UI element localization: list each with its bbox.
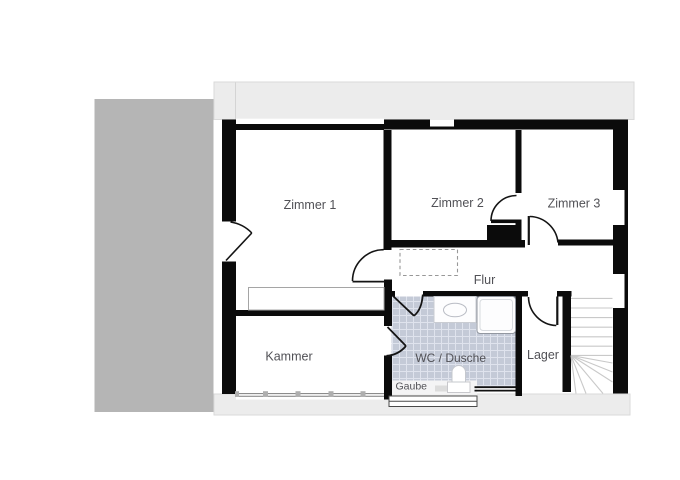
svg-text:Kammer: Kammer [265,350,312,364]
svg-text:Gaube: Gaube [396,380,428,392]
svg-text:WC / Dusche: WC / Dusche [415,351,486,365]
svg-text:Lager: Lager [527,348,559,362]
svg-text:Zimmer 3: Zimmer 3 [548,197,601,211]
svg-text:Zimmer 2: Zimmer 2 [431,196,484,210]
svg-text:Zimmer 1: Zimmer 1 [284,198,337,212]
svg-text:Flur: Flur [474,273,496,287]
